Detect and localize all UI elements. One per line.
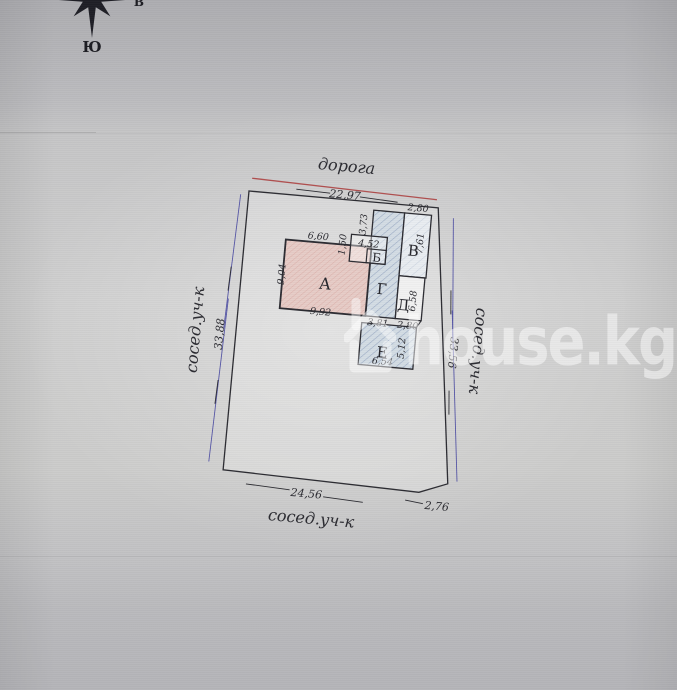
dim-b-top: 4,52 <box>357 238 380 251</box>
dim-tick <box>228 267 231 291</box>
dim-b-offset: 1,50 <box>337 234 350 256</box>
dim-e-bottom: 6,54 <box>371 356 393 369</box>
neighbor-label-left: сосед.уч-к <box>182 285 209 373</box>
dim-tick <box>323 497 363 503</box>
dim-bottom-corner: 2,76 <box>423 499 450 514</box>
dim-d-right: 6,58 <box>407 290 420 312</box>
site-plan: дорога 22,97 сосед.уч-к 33,88 сосед.уч-к <box>169 144 504 542</box>
dim-a-bottom: 9,92 <box>309 306 331 319</box>
right-blue-line <box>443 218 464 338</box>
neighbor-label-bottom: сосед.уч-к <box>267 505 355 532</box>
dim-d-bottom: 2,80 <box>396 320 419 333</box>
dim-left-boundary: 33,88 <box>212 318 228 351</box>
compass-south-label: Ю <box>82 38 101 56</box>
dim-g-top: 3,73 <box>358 213 371 235</box>
compass-east-label: В <box>134 0 144 9</box>
building-b-label: Б <box>372 250 382 265</box>
road-label: дорога <box>317 154 376 178</box>
site-plan-drawing: Ю В дорога 22,97 сосед.уч-к 33 <box>0 0 677 690</box>
neighbor-label-right: сосед.уч-к <box>465 307 492 395</box>
scanned-paper-background: Ю В дорога 22,97 сосед.уч-к 33 <box>0 0 677 690</box>
dim-v-right: 7,61 <box>414 232 427 254</box>
dim-a-left: 9,04 <box>276 263 289 285</box>
dim-tick <box>405 500 423 504</box>
dim-tick <box>296 189 330 193</box>
compass: Ю В <box>32 0 152 56</box>
building-a-label: А <box>318 274 332 294</box>
dim-v-top: 2,80 <box>406 202 429 215</box>
dim-tick <box>246 484 290 490</box>
dim-tick <box>447 391 451 415</box>
dim-a-top: 6,60 <box>307 230 329 243</box>
building-g-label: Г <box>376 280 388 299</box>
dim-bottom-boundary: 24,56 <box>289 486 323 502</box>
dim-e-right: 5,12 <box>396 337 409 359</box>
dim-g-bottom: 3,81 <box>367 317 389 330</box>
dim-right-boundary: 33,56 <box>445 337 461 370</box>
